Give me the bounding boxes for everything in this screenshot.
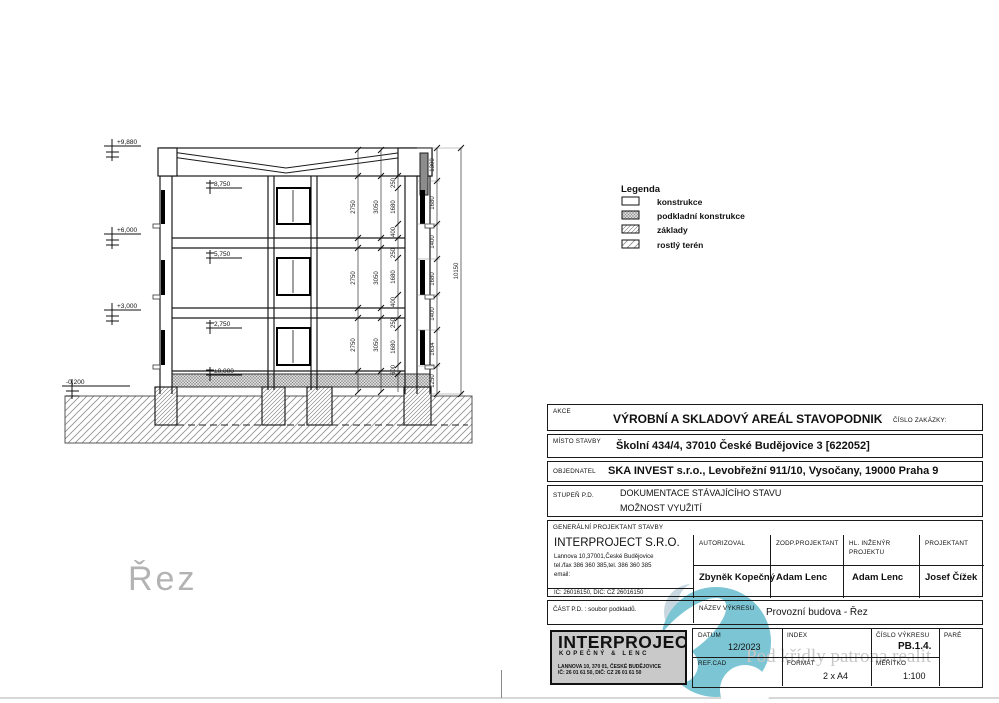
elevation-label: +3,000 [117,303,137,310]
level-label: 2,750 [214,321,231,328]
cislo-zakazky-label: ČÍSLO ZAKÁZKY: [893,417,947,424]
info-grid: DATUM 12/2023 INDEX ČÍSLO VÝKRESU PB.1.4… [692,628,983,688]
foundation-pier [155,387,177,425]
logo-subname: KOPEČNÝ & LENC [559,651,685,658]
dim-label: 1680 [430,196,436,210]
misto-row: MÍSTO STAVBY Školní 434/4, 37010 České B… [547,434,983,458]
pare-label: PARÉ [944,632,961,639]
akce-label: AKCE [553,408,571,415]
bottom-strip: INTERPROJECT KOPEČNÝ & LENC LANNOVA 10, … [547,628,983,689]
cislo-vykresu-value: PB.1.4. [898,641,931,652]
dim-label: 250 [391,317,397,328]
misto-value: Školní 434/4, 37010 České Budějovice 3 [… [616,440,870,452]
level-marks: 8,750 5,750 2,750 ±0,000 [206,180,242,381]
legend-item-label: podkladní konstrukce [657,211,745,221]
dim-label: 250 [391,247,397,258]
title-block: AKCE VÝROBNÍ A SKLADOVÝ AREÁL STAVOPODNI… [547,404,985,689]
logo-name: INTERPROJECT [558,634,685,651]
legend-swatch-teren [622,240,639,248]
dim-label: 400 [391,226,397,237]
interproject-logo: INTERPROJECT KOPEČNÝ & LENC LANNOVA 10, … [550,630,687,685]
company-ic: IČ: 26016150, DIČ: CZ 26016150 [554,590,643,596]
dim-total-label: 10150 [454,262,460,279]
format-label: FORMÁT [787,660,815,667]
elevation-label: -0,200 [66,379,85,386]
window-cut-right [420,190,425,224]
hl-inzenyr-name: Adam Lenc [852,572,903,583]
dim-label: 1680 [391,340,397,354]
elevation-label: +9,880 [117,139,137,146]
dim-label: 1680 [391,200,397,214]
stupen-value-2: MOŽNOST VYUŽITÍ [620,503,702,513]
foundation-pier [262,387,285,425]
dim-label: 1400 [430,235,436,249]
legend-title: Legenda [621,184,661,195]
stupen-value-1: DOKUMENTACE STÁVAJÍCÍHO STAVU [620,488,781,498]
zodp-label: ZODP.PROJEKTANT [776,540,839,547]
dim-label: 250 [391,177,397,188]
company-addr2: tel./fax 386 360 385,tel. 386 360 385 [554,563,651,569]
cislo-vykresu-label: ČÍSLO VÝKRESU [876,632,929,639]
dim-label: 2750 [351,338,357,352]
nazev-vykresu-label: NÁZEV VÝKRESU [699,605,754,612]
dim-label: 3050 [374,271,380,285]
sheet-fold-mark [501,670,502,698]
cast-pd-label: ČÁST P.D. : soubor podkladů. [553,606,636,613]
dimension-lines [355,145,464,397]
window-cut-right [420,260,425,295]
company-email: email: [554,572,570,578]
dim-label: 400 [391,296,397,307]
dim-label: 2750 [351,271,357,285]
project-title: VÝROBNÍ A SKLADOVÝ AREÁL STAVOPODNIK [613,412,882,426]
projektant-name: Josef Čížek [925,572,977,583]
rez-watermark: Řez [128,560,197,599]
dim-label: 3050 [374,200,380,214]
format-value: 2 x A4 [823,671,848,681]
legend-item-label: rostlý terén [657,240,703,250]
stupen-row: STUPEŇ P.D. DOKUMENTACE STÁVAJÍCÍHO STAV… [547,485,983,517]
window-cut-right [420,330,425,365]
company-name: INTERPROJECT S.R.O. [554,537,680,549]
projektant-label: PROJEKTANT [925,540,968,547]
elevation-label: +6,000 [117,227,137,234]
stupen-label: STUPEŇ P.D. [553,492,594,499]
dim-label: 1300 [430,158,436,172]
zodp-name: Adam Lenc [776,572,827,583]
dim-label: 1250 [430,374,436,388]
legend-swatch-zaklady [622,225,639,233]
dim-label: 1680 [430,272,436,286]
nazev-row: ČÁST P.D. : soubor podkladů. NÁZEV VÝKRE… [547,600,983,625]
window-cut-left [161,330,165,365]
meritko-label: MĚŘÍTKO [876,660,906,667]
level-label: 8,750 [214,181,231,188]
hl-inzenyr-label-1: HL. INŽENÝR [849,540,890,547]
level-label: 5,750 [214,251,231,258]
refcad-label: REF.CAD [698,660,726,667]
autorizoval-label: AUTORIZOVAL [699,540,745,547]
dim-label: 600 [391,364,397,375]
hl-inzenyr-label-2: PROJEKTU [849,549,884,556]
misto-label: MÍSTO STAVBY [553,438,601,445]
dim-label: 1680 [391,270,397,284]
dim-label: 1400 [430,307,436,321]
datum-value: 12/2023 [728,642,761,652]
drawing-sheet: 2750 2750 2750 3050 3050 3050 250 1680 4… [0,0,999,703]
objednatel-row: OBJEDNATEL SKA INVEST s.r.o., Levobřežní… [547,461,983,482]
objednatel-label: OBJEDNATEL [553,468,596,475]
projektant-row: GENERÁLNÍ PROJEKTANT STAVBY INTERPROJECT… [547,520,983,597]
index-label: INDEX [787,632,807,639]
meritko-value: 1:100 [903,671,926,681]
window-cut-left [161,260,165,295]
company-addr1: Lannova 10,37001,České Budějovice [554,554,653,560]
nazev-vykresu-value: Provozní budova - Řez [766,607,868,618]
window-cut-left [161,190,165,224]
level-label: ±0,000 [214,368,234,375]
autorizoval-name: Zbyněk Kopečný [699,572,775,583]
objednatel-value: SKA INVEST s.r.o., Levobřežní 911/10, Vy… [608,465,938,477]
logo-ic: IČ: 26 01 61 50, DIČ: CZ 26 01 61 50 [558,670,685,676]
elevation-marks: +9,880 +6,000 +3,000 -0,200 [62,139,141,399]
datum-label: DATUM [698,632,721,639]
legend-item-label: základy [657,225,688,235]
legend-item-label: konstrukce [657,197,703,207]
dim-label: 2750 [351,200,357,214]
gp-label: GENERÁLNÍ PROJEKTANT STAVBY [553,524,663,531]
akce-row: AKCE VÝROBNÍ A SKLADOVÝ AREÁL STAVOPODNI… [547,404,983,431]
dim-label: 1634 [430,342,436,356]
dim-label: 3050 [374,338,380,352]
legend-swatch-podkladni [622,211,639,219]
legend: Legenda konstrukce podkladní konstrukce … [621,184,745,250]
foundation-pier [307,387,332,425]
legend-swatch-konstrukce [622,197,639,205]
